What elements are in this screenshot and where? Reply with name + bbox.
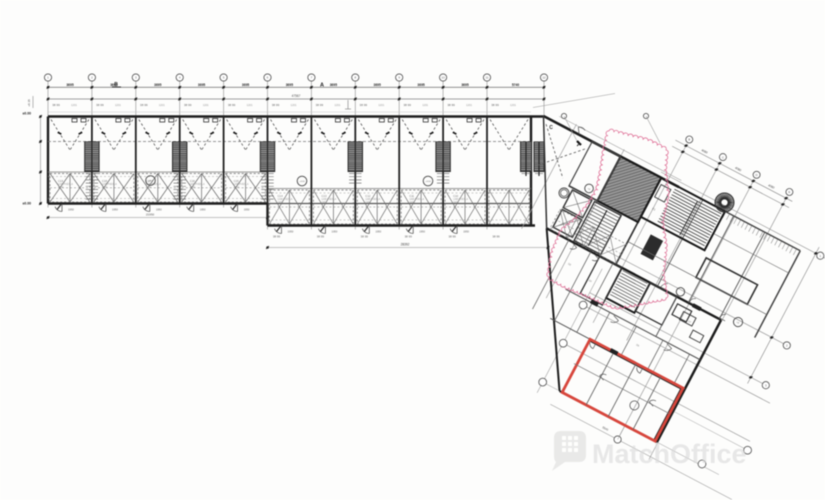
svg-text:1950: 1950 xyxy=(419,230,425,234)
svg-text:MatchOffice: MatchOffice xyxy=(592,439,747,469)
svg-text:1444: 1444 xyxy=(453,201,459,204)
svg-text:5740: 5740 xyxy=(512,83,520,87)
svg-text:1444: 1444 xyxy=(409,201,415,204)
svg-text:+3.10: +3.10 xyxy=(299,181,305,183)
svg-text:1444: 1444 xyxy=(58,186,64,189)
svg-text:1950: 1950 xyxy=(463,230,469,234)
svg-text:1444: 1444 xyxy=(190,186,196,189)
svg-text:1201: 1201 xyxy=(203,103,209,107)
svg-text:1201: 1201 xyxy=(115,103,121,107)
svg-text:A: A xyxy=(320,83,324,89)
svg-text:38 99: 38 99 xyxy=(403,103,411,107)
svg-text:3695: 3695 xyxy=(242,83,250,87)
svg-text:3695: 3695 xyxy=(154,83,162,87)
svg-text:1201: 1201 xyxy=(510,103,516,107)
svg-text:1201: 1201 xyxy=(378,103,384,107)
svg-text:1950: 1950 xyxy=(112,208,118,212)
svg-text:1950: 1950 xyxy=(156,208,162,212)
svg-text:1950: 1950 xyxy=(68,208,74,212)
svg-text:12: 12 xyxy=(542,76,546,80)
svg-text:1444: 1444 xyxy=(278,201,284,204)
svg-text:B: B xyxy=(688,138,690,142)
svg-text:10: 10 xyxy=(441,76,445,80)
svg-text:1444: 1444 xyxy=(234,186,240,189)
svg-text:38 99: 38 99 xyxy=(447,103,455,107)
svg-text:38 99: 38 99 xyxy=(491,103,499,107)
svg-text:38 99: 38 99 xyxy=(272,103,280,107)
svg-text:21950: 21950 xyxy=(146,213,155,217)
svg-text:1444: 1444 xyxy=(365,201,371,204)
svg-text:C: C xyxy=(549,125,553,131)
svg-text:38 99: 38 99 xyxy=(228,103,236,107)
svg-text:1444: 1444 xyxy=(146,186,152,189)
svg-text:1444: 1444 xyxy=(321,201,327,204)
svg-text:1201: 1201 xyxy=(334,103,340,107)
svg-text:11: 11 xyxy=(485,76,488,80)
svg-text:3695: 3695 xyxy=(66,83,74,87)
svg-text:1201: 1201 xyxy=(466,103,472,107)
svg-text:3695: 3695 xyxy=(374,83,382,87)
svg-text:E: E xyxy=(788,190,790,194)
svg-text:1444: 1444 xyxy=(102,186,108,189)
svg-text:3695: 3695 xyxy=(286,83,294,87)
svg-text:38 99: 38 99 xyxy=(405,235,413,239)
svg-text:+3.10: +3.10 xyxy=(425,181,431,183)
svg-text:38 99: 38 99 xyxy=(96,103,104,107)
svg-text:38 99: 38 99 xyxy=(52,103,60,107)
svg-text:38 99: 38 99 xyxy=(184,103,192,107)
svg-text:1201: 1201 xyxy=(422,103,428,107)
svg-text:+8.35: +8.35 xyxy=(27,99,31,107)
svg-text:1950: 1950 xyxy=(375,230,381,234)
svg-text:±0.00: ±0.00 xyxy=(23,202,32,206)
svg-text:1950: 1950 xyxy=(200,208,206,212)
svg-text:3695: 3695 xyxy=(461,83,469,87)
svg-text:1201: 1201 xyxy=(247,103,253,107)
svg-text:3695: 3695 xyxy=(417,83,425,87)
svg-text:3695: 3695 xyxy=(198,83,206,87)
svg-text:38 99: 38 99 xyxy=(316,103,324,107)
svg-text:1950: 1950 xyxy=(244,208,250,212)
svg-text:38 99: 38 99 xyxy=(317,235,325,239)
svg-text:1950: 1950 xyxy=(288,230,294,234)
svg-text:1201: 1201 xyxy=(159,103,165,107)
svg-text:3695: 3695 xyxy=(330,83,338,87)
svg-text:1950: 1950 xyxy=(332,230,338,234)
svg-text:+3.10: +3.10 xyxy=(148,181,154,183)
svg-text:38 99: 38 99 xyxy=(492,235,500,239)
svg-text:38 99: 38 99 xyxy=(360,103,368,107)
svg-text:1201: 1201 xyxy=(291,103,297,107)
svg-text:38 99: 38 99 xyxy=(448,235,456,239)
svg-text:38 99: 38 99 xyxy=(361,235,369,239)
svg-text:1201: 1201 xyxy=(71,103,77,107)
svg-text:±0.00: ±0.00 xyxy=(23,112,32,116)
svg-text:38 99: 38 99 xyxy=(273,235,281,239)
svg-text:28392: 28392 xyxy=(401,243,410,247)
svg-text:47567: 47567 xyxy=(292,94,301,98)
svg-text:38 99: 38 99 xyxy=(140,103,148,107)
